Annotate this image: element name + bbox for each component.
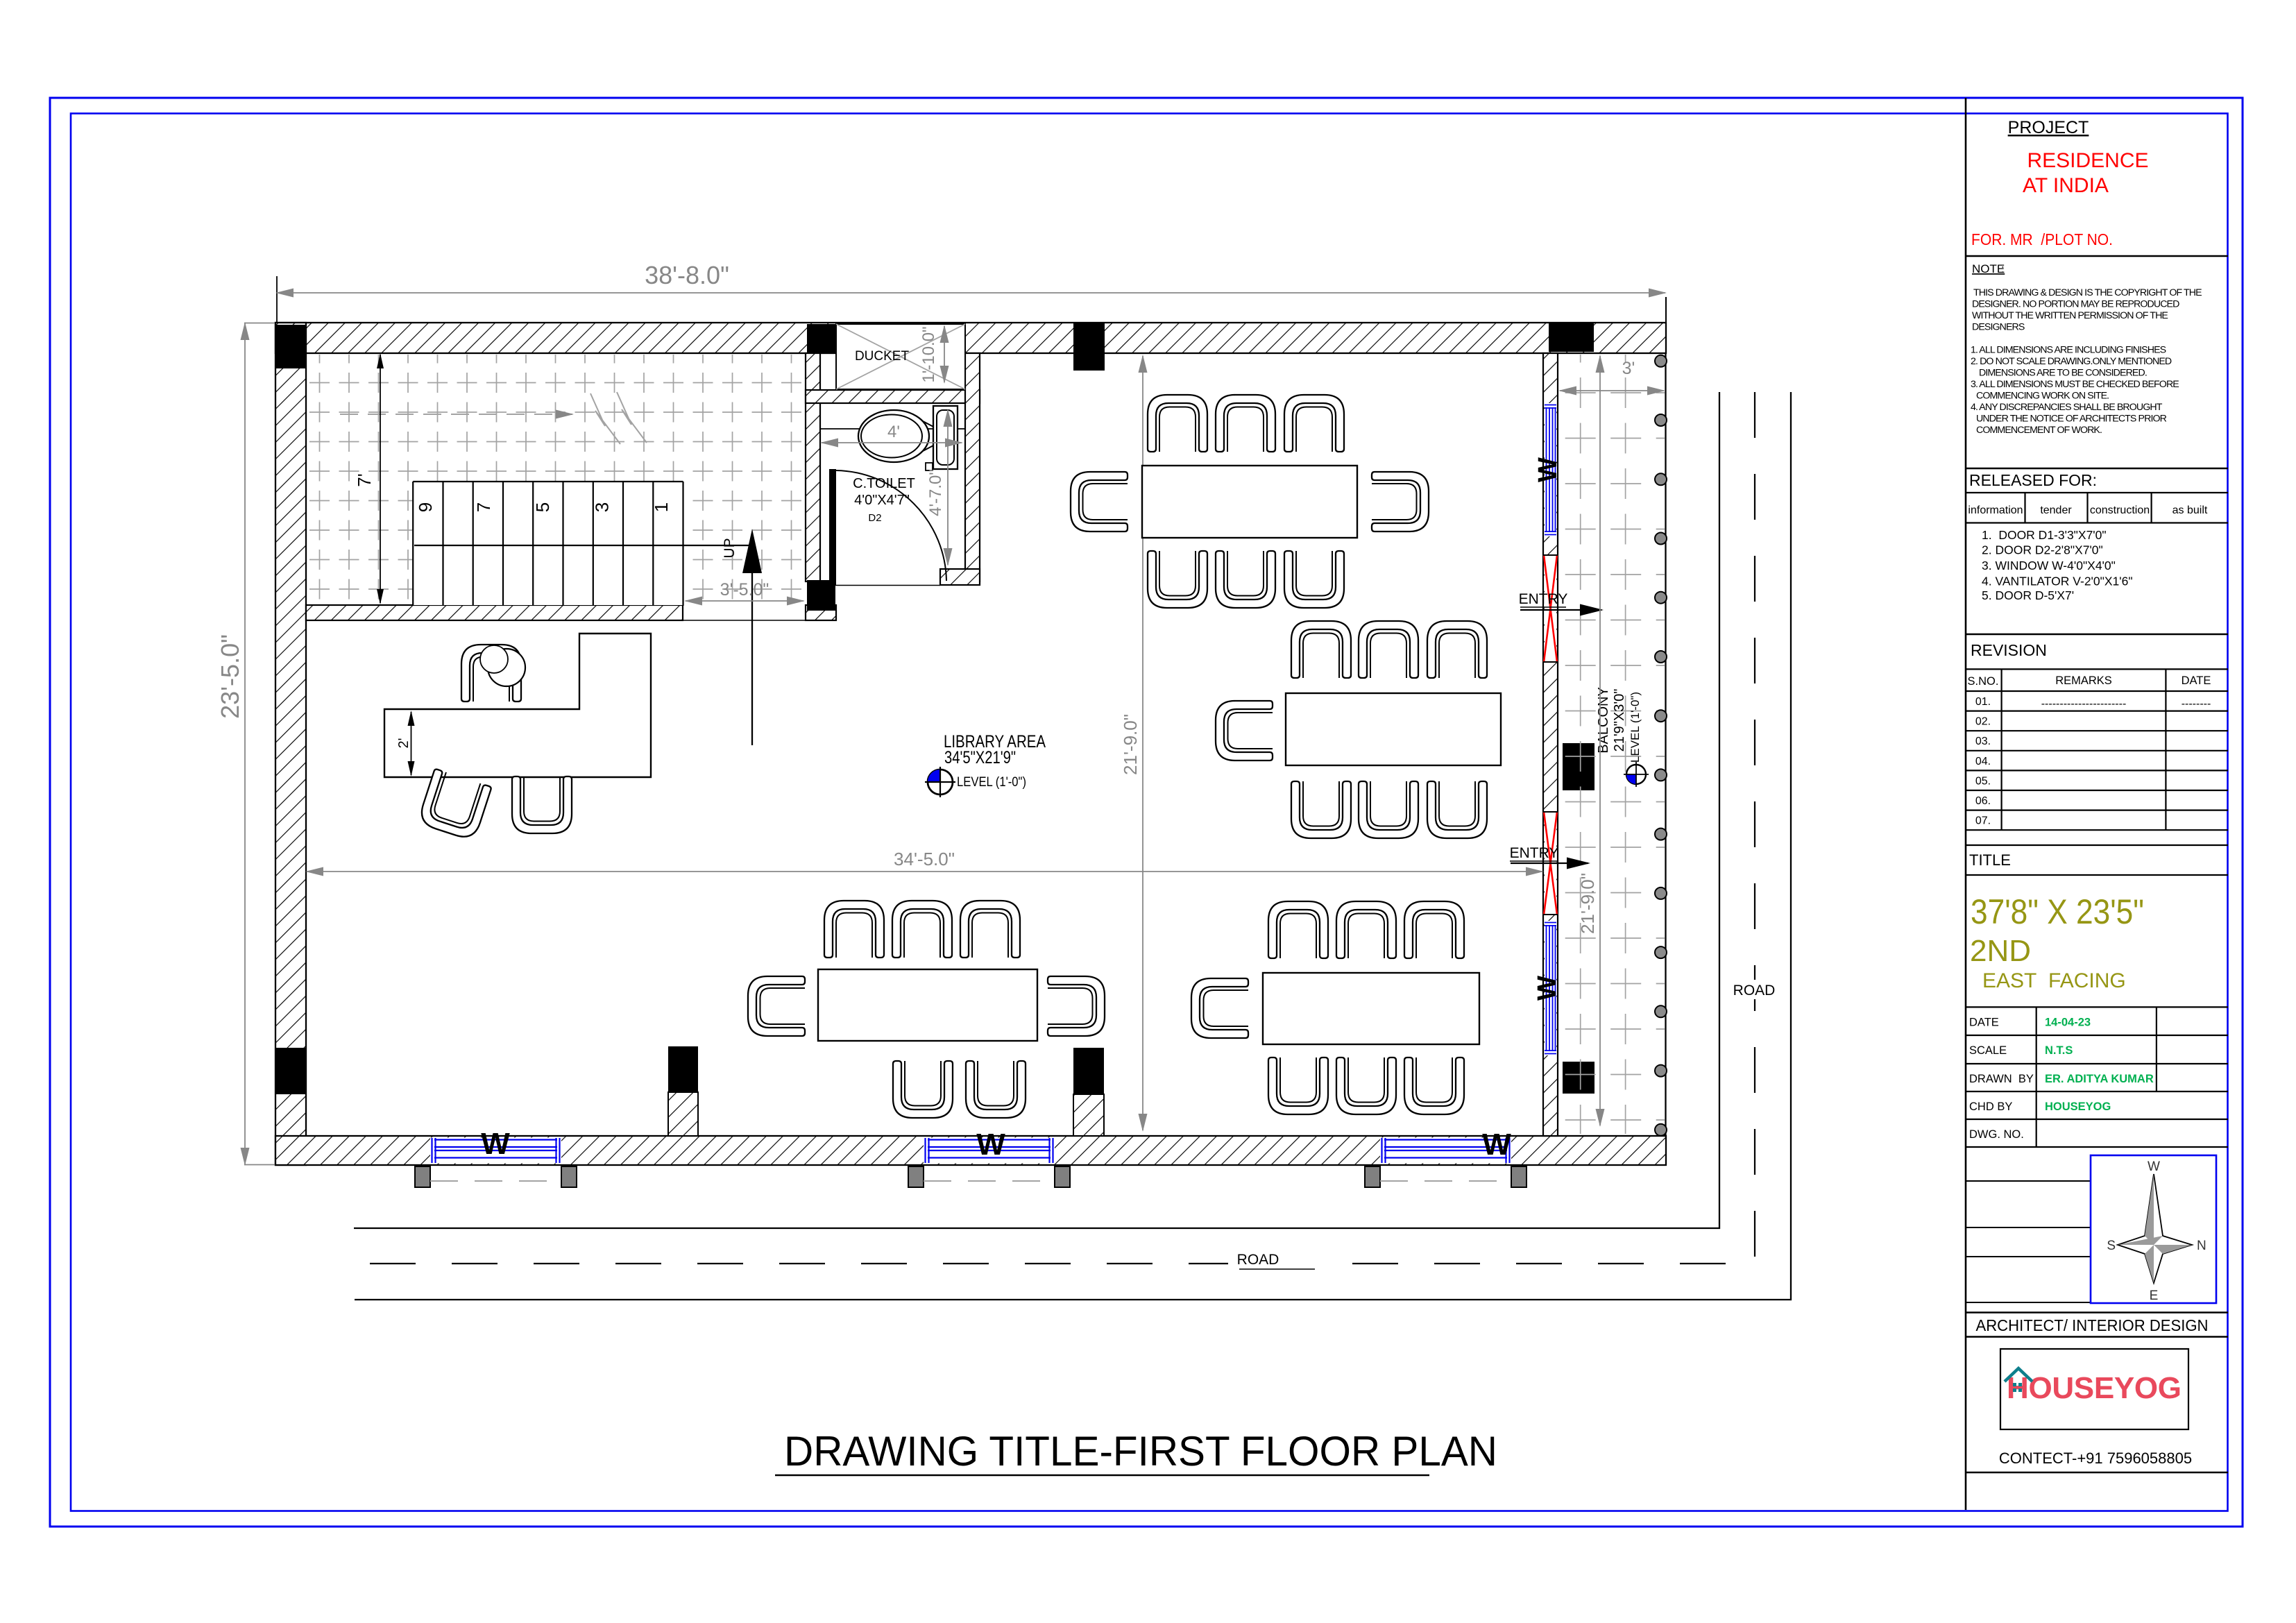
svg-text:DATE: DATE bbox=[2182, 674, 2211, 687]
svg-text:DESIGNER. NO PORTION MAY BE RE: DESIGNER. NO PORTION MAY BE REPRODUCED bbox=[1972, 299, 2179, 310]
svg-text:02.: 02. bbox=[1975, 716, 1991, 728]
svg-text:4'-7.0": 4'-7.0" bbox=[926, 469, 945, 516]
svg-text:4': 4' bbox=[887, 423, 900, 441]
svg-text:N: N bbox=[2197, 1239, 2206, 1253]
svg-text:DIMENSIONS ARE TO BE CONSIDERE: DIMENSIONS ARE TO BE CONSIDERED. bbox=[1979, 368, 2147, 379]
svg-text:ROAD: ROAD bbox=[1237, 1252, 1279, 1268]
svg-text:EAST FACING: EAST FACING bbox=[1982, 969, 2126, 992]
svg-text:21'-9.0": 21'-9.0" bbox=[1577, 873, 1598, 934]
svg-text:W: W bbox=[976, 1128, 1005, 1162]
svg-text:23'-5.0": 23'-5.0" bbox=[216, 634, 244, 719]
svg-text:FOR. MR /PLOT NO.: FOR. MR /PLOT NO. bbox=[1971, 230, 2113, 248]
svg-text:01.: 01. bbox=[1975, 696, 1991, 708]
svg-text:W: W bbox=[2148, 1159, 2160, 1174]
svg-text:REMARKS: REMARKS bbox=[2055, 674, 2112, 687]
svg-text:COMMENCEMENT OF WORK.: COMMENCEMENT OF WORK. bbox=[1976, 425, 2102, 436]
svg-text:TITLE: TITLE bbox=[1969, 851, 2011, 869]
svg-text:HOUSEYOG: HOUSEYOG bbox=[2045, 1101, 2111, 1113]
svg-text:3: 3 bbox=[592, 502, 613, 512]
svg-text:RELEASED FOR:: RELEASED FOR: bbox=[1969, 471, 2097, 489]
svg-text:2ND: 2ND bbox=[1970, 934, 2031, 968]
svg-text:COMMENCING WORK ON SITE.: COMMENCING WORK ON SITE. bbox=[1976, 391, 2109, 402]
svg-text:DRAWN BY: DRAWN BY bbox=[1969, 1073, 2034, 1085]
svg-text:REVISION: REVISION bbox=[1971, 641, 2047, 659]
svg-text:DESIGNERS: DESIGNERS bbox=[1972, 322, 2025, 333]
svg-text:ER. ADITYA KUMAR: ER. ADITYA KUMAR bbox=[2045, 1073, 2154, 1085]
svg-text:4. ANY DISCREPANCIES SHALL BE: 4. ANY DISCREPANCIES SHALL BE BROUGHT bbox=[1971, 402, 2163, 413]
svg-text:THIS DRAWING & DESIGN IS THE C: THIS DRAWING & DESIGN IS THE COPYRIGHT O… bbox=[1973, 287, 2202, 298]
svg-text:38'-8.0": 38'-8.0" bbox=[645, 261, 729, 289]
svg-text:05.: 05. bbox=[1975, 775, 1991, 787]
svg-text:E: E bbox=[2150, 1289, 2159, 1303]
svg-text:HOUSEYOG: HOUSEYOG bbox=[2007, 1371, 2182, 1405]
svg-text:3. ALL DIMENSIONS MUST BE CHEC: 3. ALL DIMENSIONS MUST BE CHECKED BEFORE bbox=[1971, 379, 2179, 390]
svg-text:1: 1 bbox=[651, 502, 672, 512]
svg-text:7': 7' bbox=[354, 473, 375, 486]
svg-text:ROAD: ROAD bbox=[1733, 983, 1776, 999]
svg-text:construction: construction bbox=[2090, 504, 2150, 516]
svg-text:07.: 07. bbox=[1975, 815, 1991, 827]
svg-text:34'5"X21'9": 34'5"X21'9" bbox=[944, 748, 1016, 767]
svg-text:21'9"X3'0": 21'9"X3'0" bbox=[1612, 689, 1627, 752]
svg-text:as built: as built bbox=[2172, 504, 2208, 516]
svg-text:DRAWING TITLE-FIRST FLOOR PLAN: DRAWING TITLE-FIRST FLOOR PLAN bbox=[784, 1428, 1497, 1475]
svg-text:PROJECT: PROJECT bbox=[2008, 118, 2089, 137]
svg-text:2. DOOR D2-2'8"X7'0": 2. DOOR D2-2'8"X7'0" bbox=[1982, 543, 2103, 557]
svg-text:DATE: DATE bbox=[1969, 1016, 1999, 1028]
svg-text:WITHOUT THE WRITTEN PERMISSION: WITHOUT THE WRITTEN PERMISSION OF THE bbox=[1972, 310, 2168, 321]
svg-text:S: S bbox=[2107, 1239, 2116, 1253]
svg-text:DUCKET: DUCKET bbox=[855, 349, 910, 364]
svg-text:03.: 03. bbox=[1975, 736, 1991, 747]
svg-text:W: W bbox=[1533, 976, 1562, 1001]
svg-text:04.: 04. bbox=[1975, 756, 1991, 767]
svg-text:37'8" X 23'5": 37'8" X 23'5" bbox=[1971, 892, 2144, 931]
svg-text:LEVEL (1'-0"): LEVEL (1'-0") bbox=[1629, 692, 1642, 763]
svg-text:NOTE: NOTE bbox=[1972, 262, 2005, 275]
svg-text:CHD BY: CHD BY bbox=[1969, 1101, 2012, 1113]
svg-text:1'-10.0": 1'-10.0" bbox=[919, 326, 938, 382]
svg-text:-----------------------: ----------------------- bbox=[2041, 698, 2127, 710]
svg-text:1. ALL DIMENSIONS ARE INCLUDIN: 1. ALL DIMENSIONS ARE INCLUDING FINISHES bbox=[1971, 345, 2166, 356]
svg-text:D2: D2 bbox=[868, 512, 881, 524]
svg-text:W: W bbox=[1533, 457, 1563, 482]
svg-text:ARCHITECT/ INTERIOR DESIGN: ARCHITECT/ INTERIOR DESIGN bbox=[1976, 1316, 2209, 1334]
svg-text:5: 5 bbox=[532, 502, 553, 512]
svg-text:7: 7 bbox=[473, 502, 494, 512]
svg-text:W: W bbox=[481, 1127, 510, 1161]
svg-text:--------: -------- bbox=[2182, 698, 2211, 710]
svg-text:tender: tender bbox=[2040, 504, 2072, 516]
svg-text:34'-5.0": 34'-5.0" bbox=[894, 849, 955, 869]
svg-text:ENTRY: ENTRY bbox=[1519, 591, 1568, 607]
svg-text:BALCONY: BALCONY bbox=[1596, 687, 1611, 754]
svg-text:DWG. NO.: DWG. NO. bbox=[1969, 1128, 2024, 1141]
svg-text:3': 3' bbox=[1622, 359, 1635, 378]
svg-text:LEVEL (1'-0"): LEVEL (1'-0") bbox=[957, 775, 1026, 790]
svg-text:ENTRY: ENTRY bbox=[1510, 845, 1559, 861]
svg-text:3'-5.0": 3'-5.0" bbox=[720, 580, 769, 600]
svg-text:C.TOILET: C.TOILET bbox=[853, 476, 915, 491]
svg-text::: : bbox=[2001, 262, 2005, 275]
svg-text:SCALE: SCALE bbox=[1969, 1044, 2007, 1057]
svg-text:UP: UP bbox=[722, 538, 738, 558]
svg-text:information: information bbox=[1968, 504, 2023, 516]
svg-text:2': 2' bbox=[396, 738, 411, 749]
svg-text:W: W bbox=[1482, 1128, 1511, 1162]
svg-text:2. DO NOT SCALE DRAWING.ONLY M: 2. DO NOT SCALE DRAWING.ONLY MENTIONED bbox=[1971, 356, 2172, 367]
svg-text:14-04-23: 14-04-23 bbox=[2045, 1016, 2091, 1028]
svg-text:N.T.S: N.T.S bbox=[2045, 1044, 2073, 1057]
svg-text:5. DOOR D-5'X7': 5. DOOR D-5'X7' bbox=[1982, 588, 2074, 602]
svg-text:3. WINDOW W-4'0"X4'0": 3. WINDOW W-4'0"X4'0" bbox=[1982, 559, 2116, 572]
svg-text:S.NO.: S.NO. bbox=[1968, 675, 1999, 688]
svg-text:AT INDIA: AT INDIA bbox=[2023, 174, 2109, 197]
svg-text:UNDER THE NOTICE OF ARCHITECTS: UNDER THE NOTICE OF ARCHITECTS PRIOR bbox=[1976, 414, 2167, 425]
svg-text:1. DOOR D1-3'3"X7'0": 1. DOOR D1-3'3"X7'0" bbox=[1982, 528, 2107, 542]
svg-text:06.: 06. bbox=[1975, 795, 1991, 807]
svg-text:RESIDENCE: RESIDENCE bbox=[2027, 149, 2148, 172]
svg-text:4'0"X4'7": 4'0"X4'7" bbox=[854, 493, 910, 508]
svg-text:4. VANTILATOR V-2'0"X1'6": 4. VANTILATOR V-2'0"X1'6" bbox=[1982, 575, 2133, 588]
svg-text:CONTECT-+91 7596058805: CONTECT-+91 7596058805 bbox=[1999, 1450, 2192, 1467]
svg-text:9: 9 bbox=[415, 502, 436, 512]
svg-text:21'-9.0": 21'-9.0" bbox=[1120, 714, 1141, 775]
